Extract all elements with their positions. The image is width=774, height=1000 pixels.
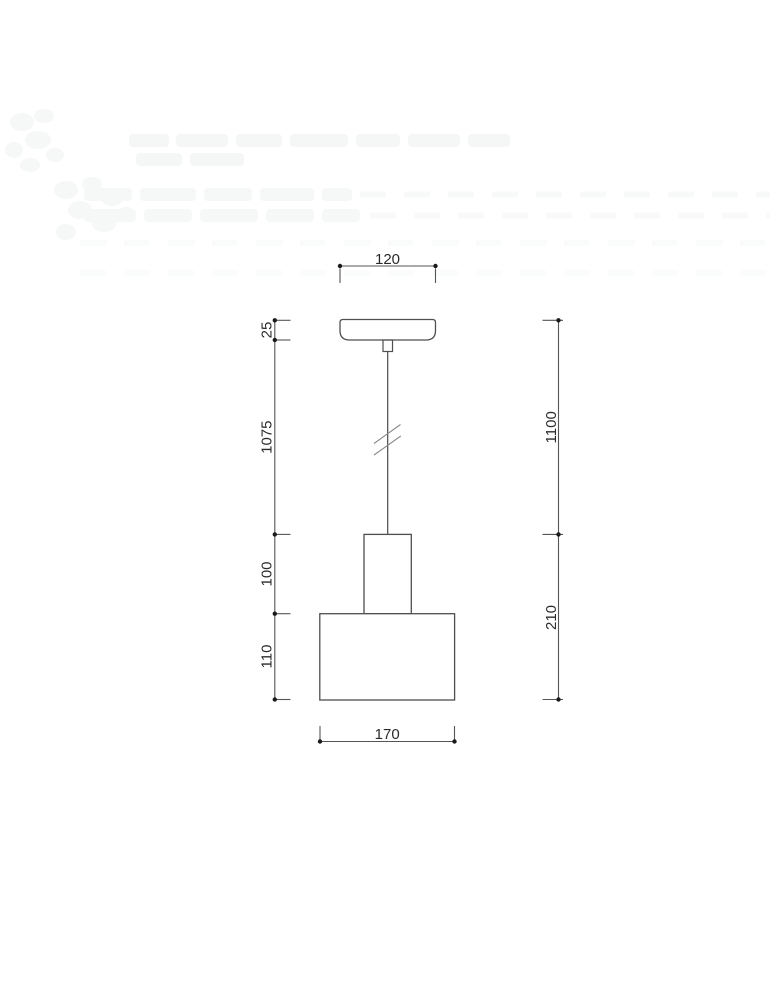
svg-text:100: 100 — [258, 561, 275, 586]
svg-text:1075: 1075 — [258, 421, 275, 454]
svg-text:110: 110 — [258, 645, 275, 669]
svg-text:210: 210 — [543, 605, 560, 630]
svg-text:1100: 1100 — [543, 411, 560, 443]
svg-text:25: 25 — [258, 322, 275, 339]
svg-text:170: 170 — [375, 726, 400, 743]
